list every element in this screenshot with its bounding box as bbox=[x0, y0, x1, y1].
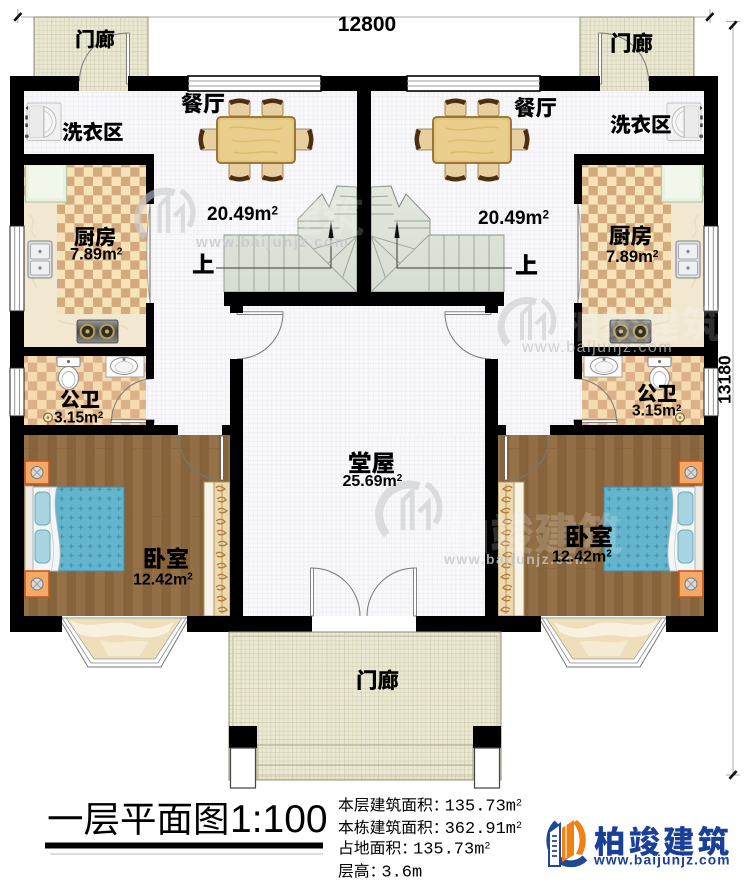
svg-text:3.15m2: 3.15m2 bbox=[632, 403, 681, 420]
svg-text:7.89m2: 7.89m2 bbox=[70, 246, 123, 264]
svg-text:www.baijunjz.com: www.baijunjz.com bbox=[593, 853, 731, 868]
svg-text:12.42m2: 12.42m2 bbox=[552, 549, 612, 566]
svg-text:1:100: 1:100 bbox=[230, 798, 328, 841]
svg-text:12800: 12800 bbox=[338, 13, 396, 36]
svg-text:7.89m2: 7.89m2 bbox=[606, 248, 659, 266]
svg-text:362.91m2: 362.91m2 bbox=[445, 820, 522, 839]
svg-text:135.73m2: 135.73m2 bbox=[445, 798, 522, 817]
svg-text:135.73m2: 135.73m2 bbox=[413, 841, 490, 860]
svg-text:www.baijunjz.com: www.baijunjz.com bbox=[195, 234, 349, 251]
svg-text:www.baijunjz.com: www.baijunjz.com bbox=[521, 339, 673, 356]
svg-text:3.15m2: 3.15m2 bbox=[54, 410, 103, 427]
svg-text:12.42m2: 12.42m2 bbox=[133, 572, 193, 589]
svg-text:3.6m: 3.6m bbox=[381, 864, 422, 883]
svg-text:20.49m2: 20.49m2 bbox=[478, 207, 549, 229]
svg-text:25.69m2: 25.69m2 bbox=[343, 473, 403, 490]
svg-text:20.49m2: 20.49m2 bbox=[207, 203, 278, 225]
